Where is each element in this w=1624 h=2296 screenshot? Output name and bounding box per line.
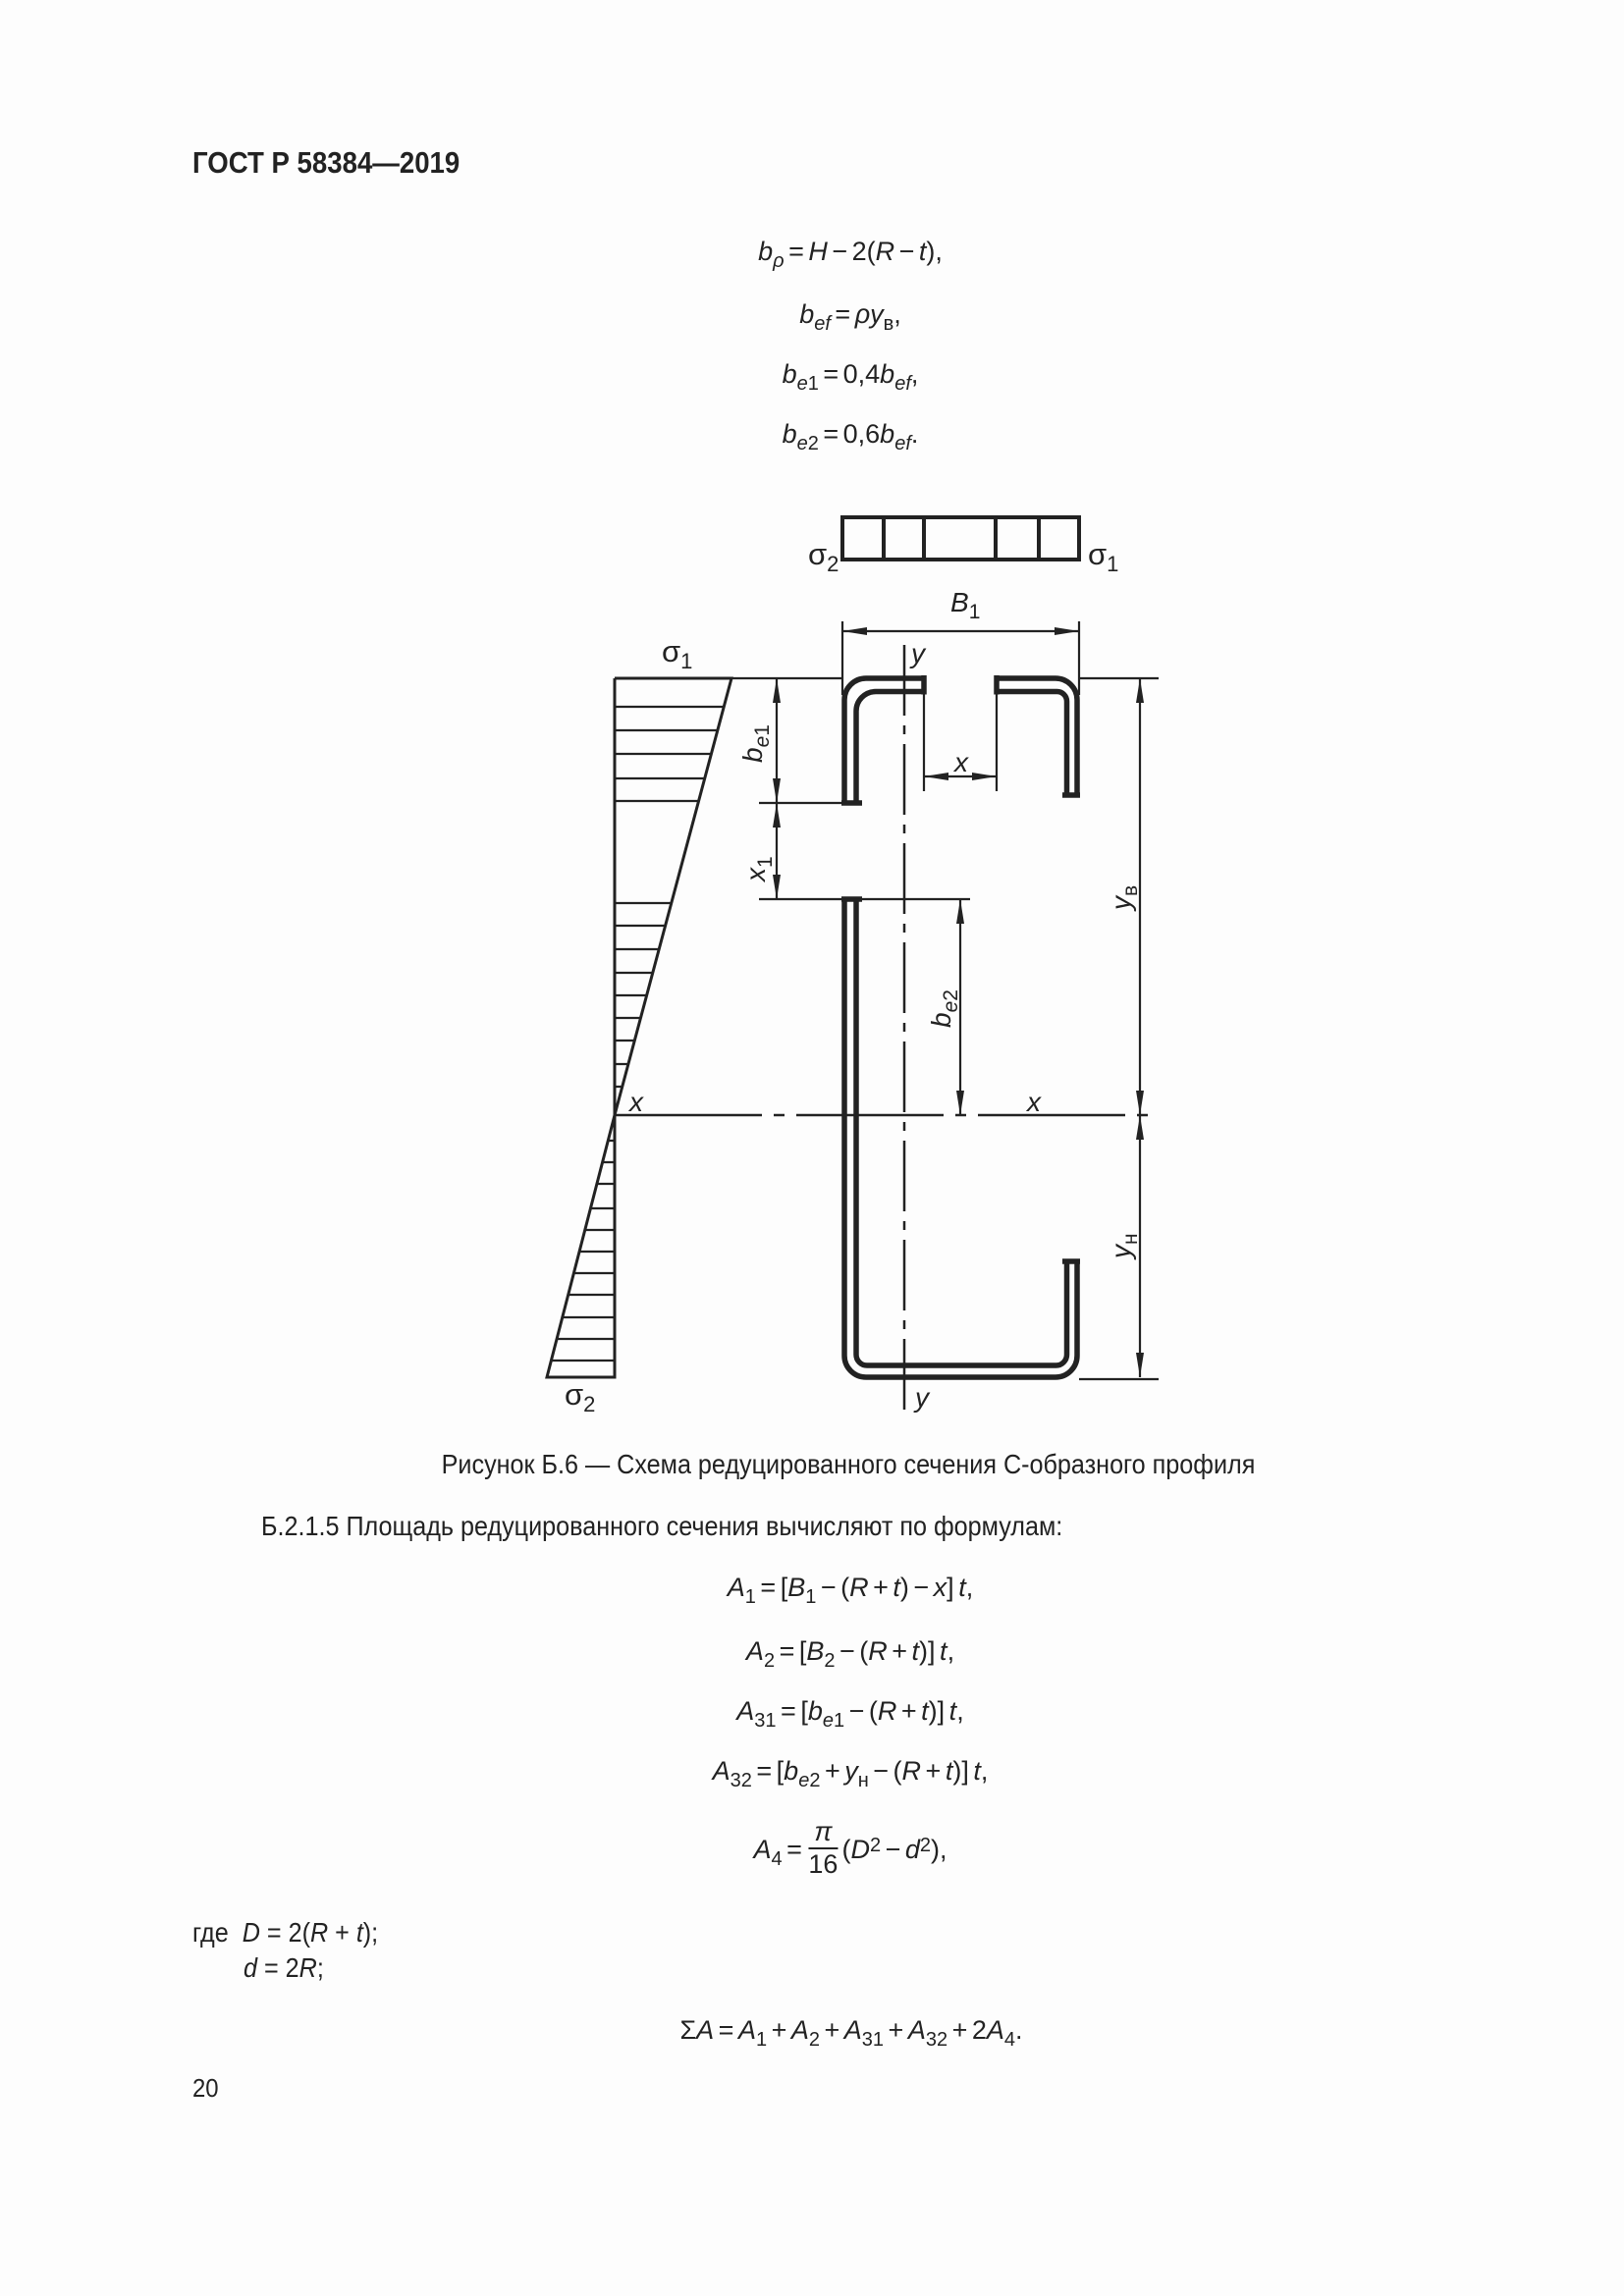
svg-text:be1: be1 (737, 724, 774, 763)
svg-text:be2: be2 (926, 989, 962, 1028)
svg-text:y: y (913, 1382, 931, 1413)
svg-text:y: y (909, 638, 927, 668)
svg-text:σ2: σ2 (808, 537, 839, 576)
svg-text:σ2: σ2 (565, 1377, 595, 1416)
svg-text:yв: yв (1106, 885, 1142, 912)
svg-text:σ1: σ1 (662, 634, 692, 673)
svg-text:x: x (1025, 1087, 1042, 1117)
svg-text:x: x (627, 1087, 644, 1117)
svg-text:x: x (952, 747, 969, 777)
svg-text:B1: B1 (950, 587, 980, 623)
svg-text:σ1: σ1 (1088, 537, 1118, 576)
svg-text:x1: x1 (740, 856, 777, 883)
svg-text:yн: yн (1106, 1233, 1142, 1260)
